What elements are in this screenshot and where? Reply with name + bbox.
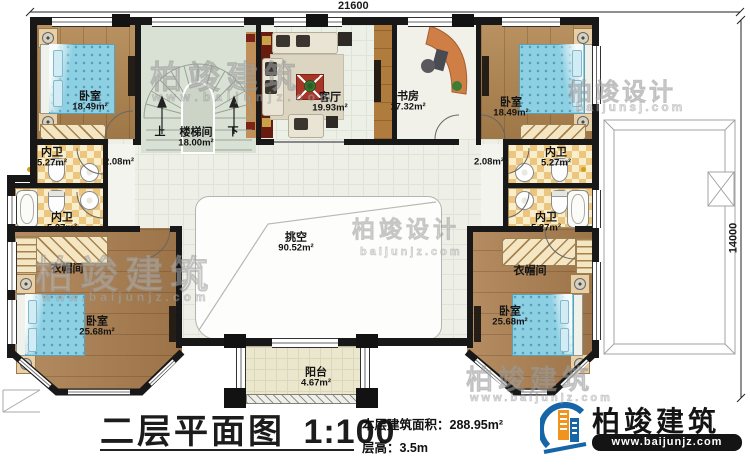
- nightstand: [570, 274, 590, 294]
- wall: [30, 139, 107, 145]
- title-underline: [100, 449, 354, 451]
- sofa-cushion: [296, 35, 310, 47]
- window: [592, 46, 601, 104]
- room-label-bath-r1: 内卫 5.27m²: [541, 147, 571, 170]
- floor-area-line: 本层建筑面积：288.95m²: [362, 414, 503, 433]
- bathtub: [567, 190, 589, 228]
- wardrobe: [36, 236, 108, 264]
- wardrobe: [520, 124, 586, 140]
- wall: [176, 226, 182, 348]
- tv: [374, 60, 381, 102]
- side-table: [326, 116, 338, 128]
- wall: [344, 139, 397, 145]
- roof-outline-bottom-left: [3, 390, 40, 412]
- side-table: [338, 32, 352, 46]
- speaker: [246, 122, 255, 130]
- wardrobe: [15, 236, 37, 276]
- room-label-bath-r2: 内卫 5.27m²: [531, 212, 561, 235]
- sofa-cushion: [265, 62, 277, 76]
- wall: [397, 139, 459, 145]
- sink: [515, 163, 534, 182]
- room-label-bath-l1: 内卫 5.27m²: [37, 147, 67, 170]
- sink: [80, 163, 99, 182]
- balcony-railing: [246, 394, 360, 404]
- wall: [476, 17, 481, 145]
- wall: [30, 17, 37, 185]
- wall: [504, 139, 596, 145]
- lamp-icon: [574, 278, 586, 290]
- wall: [256, 17, 261, 145]
- brand-logo: 柏竣建筑 www.baijunjz.com: [540, 398, 745, 460]
- lamp-icon: [20, 278, 32, 290]
- lamp-icon: [20, 358, 32, 370]
- room-void-floor: [195, 196, 442, 340]
- bathtub: [16, 190, 38, 228]
- wall: [135, 17, 141, 145]
- room-label-cloakroom-left: 衣帽间: [51, 263, 84, 275]
- plant: [304, 80, 316, 92]
- floor-height-line: 层高：3.5m: [362, 437, 428, 456]
- stair-down-label: 下: [228, 126, 239, 138]
- room-label-bedroom-top-right: 卧室 18.49m²: [493, 97, 528, 120]
- brand-logo-icon: [540, 398, 590, 458]
- nightstand: [570, 354, 590, 374]
- title-block: 二层平面图 1:100: [100, 404, 395, 453]
- tv-cabinet: [474, 306, 481, 342]
- window: [7, 242, 17, 290]
- nightstand: [16, 354, 36, 374]
- lamp-icon: [577, 32, 589, 44]
- page-title: 二层平面图: [100, 413, 285, 451]
- floor-plan-page: 卧室 18.49m² 上 楼梯间 18.00m² 下 客厅 19.93m² 书房…: [0, 0, 750, 466]
- window: [502, 17, 560, 27]
- window: [152, 17, 244, 27]
- speaker: [246, 34, 255, 42]
- window: [7, 196, 17, 224]
- window: [7, 300, 17, 344]
- wall: [256, 139, 274, 145]
- stair-up-label: 上: [155, 126, 166, 138]
- dimension-top-label: 21600: [338, 0, 369, 12]
- wall: [7, 183, 108, 188]
- pillow: [28, 328, 37, 352]
- hall-right-area-label: 2.08m²: [474, 158, 504, 169]
- room-label-study: 书房 17.32m²: [390, 91, 425, 114]
- wall: [392, 17, 397, 145]
- pillow: [560, 328, 569, 352]
- tv-cabinet: [482, 56, 489, 96]
- dimension-right-label: 14000: [727, 223, 739, 254]
- tv-cabinet: [128, 56, 135, 96]
- room-label-stairwell: 楼梯间 18.00m²: [178, 127, 213, 150]
- wall: [133, 139, 141, 145]
- room-label-living: 客厅 19.93m²: [312, 92, 347, 115]
- room-label-bedroom-bottom-right: 卧室 25.68m²: [492, 306, 527, 329]
- room-study-floor: [397, 25, 476, 139]
- pillow: [572, 80, 582, 107]
- column: [112, 14, 130, 27]
- window: [592, 262, 601, 340]
- sofa-cushion: [294, 118, 308, 130]
- room-label-bedroom-bottom-left: 卧室 25.68m²: [79, 316, 114, 339]
- window: [592, 190, 601, 228]
- tv-cabinet: [169, 306, 176, 342]
- column: [224, 334, 246, 348]
- room-label-bath-l2: 内卫 5.27m²: [47, 212, 77, 235]
- sink: [515, 191, 534, 210]
- nightstand: [16, 274, 36, 294]
- lamp-icon: [574, 358, 586, 370]
- wall: [467, 226, 473, 348]
- toilet: [48, 190, 65, 214]
- railing-living: [274, 141, 344, 143]
- wardrobe: [502, 238, 576, 266]
- toilet: [551, 190, 568, 214]
- roof-outline-right: [604, 120, 735, 354]
- towel-ring: [581, 167, 586, 172]
- pillow: [53, 80, 63, 107]
- room-label-bedroom-top-left: 卧室 18.49m²: [72, 91, 107, 114]
- pillow: [560, 300, 569, 324]
- hall-left-area-label: 2.08m²: [104, 158, 134, 169]
- balcony-door-window: [272, 338, 338, 348]
- sink: [80, 191, 99, 210]
- brand-website: www.baijunjz.com: [592, 434, 742, 451]
- wall: [503, 183, 597, 188]
- column: [452, 14, 474, 27]
- sofa-cushion: [276, 35, 290, 47]
- pillow: [572, 50, 582, 77]
- speaker: [262, 36, 271, 45]
- sofa-cushion: [265, 80, 277, 94]
- column: [306, 14, 328, 27]
- pillow: [53, 50, 63, 77]
- pillow: [28, 300, 37, 324]
- window: [52, 17, 112, 27]
- wardrobe: [40, 124, 106, 140]
- room-label-balcony: 阳台 4.67m²: [301, 367, 331, 390]
- column: [356, 334, 378, 348]
- lamp-icon: [42, 32, 54, 44]
- room-label-void: 挑空 90.52m²: [278, 232, 313, 255]
- room-label-cloakroom-right: 衣帽间: [514, 265, 547, 277]
